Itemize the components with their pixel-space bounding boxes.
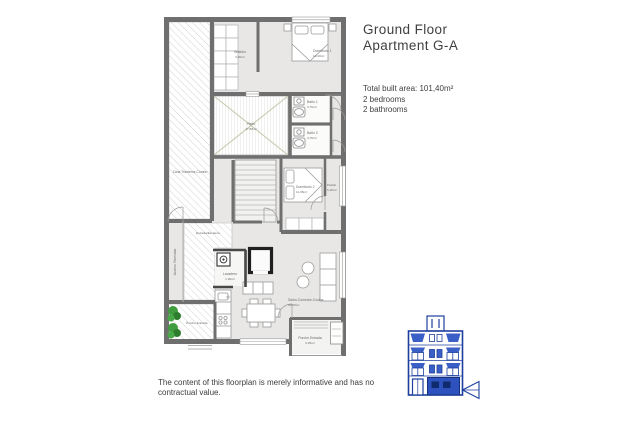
label-vestidor: Vestidor — [234, 50, 247, 54]
label-patio: Patio — [247, 122, 255, 126]
area-porche-right: 3,25m² — [305, 341, 315, 345]
window-icon — [240, 339, 286, 345]
plan-title-line2: Apartment G-A — [363, 38, 458, 54]
label-entrada: Entrada/Escalera — [196, 231, 220, 235]
kitchen-peninsula-icon — [243, 282, 273, 294]
area-lavadero: 1,90m² — [225, 277, 235, 281]
label-acceso: Acceso Viviendas — [173, 248, 177, 275]
utility-closet — [331, 322, 344, 344]
label-porche-left: Porche Entrada — [186, 321, 208, 325]
area-vestidor: 3,90m² — [235, 55, 245, 59]
label-salon: Salón-Comedor-Cocina — [288, 298, 324, 302]
disclaimer-text: The content of this floorplan is merely … — [158, 378, 410, 398]
label-dormitorio2: Dormitorio 2 — [296, 185, 315, 189]
plan-title-line1: Ground Floor — [363, 22, 458, 38]
bed1-icon — [284, 23, 336, 61]
elevator — [250, 249, 272, 273]
floorplan-drawing: Zona Trasteros Común Acceso Viviendas En… — [0, 0, 630, 423]
area-bano2: 3,70m² — [307, 136, 317, 140]
kitchen-counter-icon — [215, 290, 231, 338]
area-salon: 32,50m² — [288, 303, 299, 307]
window-icon — [340, 252, 346, 298]
area-dormitorio2: 11,05m² — [296, 190, 307, 194]
toilet2-icon — [293, 128, 305, 148]
label-dormitorio1: Dormitorio 1 — [313, 49, 332, 53]
label-bano2: Baño 2 — [307, 131, 318, 135]
label-lavadero: Lavadero — [223, 272, 237, 276]
penthouse — [427, 316, 444, 331]
area-bano1: 3,70m² — [307, 105, 317, 109]
stairs-icon — [235, 160, 276, 222]
highlighted-ground-floor — [428, 378, 460, 396]
wardrobe2-icon — [286, 218, 324, 230]
plan-title: Ground Floor Apartment G-A — [363, 22, 458, 54]
label-pasillo: Pasillo — [327, 183, 336, 187]
area-pasillo: 5,20m² — [327, 188, 337, 192]
label-trasteros: Zona Trasteros Común — [173, 170, 208, 174]
plan-summary: Total built area: 101,40m² 2 bedrooms 2 … — [363, 84, 453, 116]
area-patio: 17,80m² — [245, 127, 256, 131]
toilet-icon — [293, 97, 305, 117]
washing-machine-icon — [217, 253, 230, 266]
window-icon — [340, 166, 346, 206]
label-bano1: Baño 1 — [307, 100, 318, 104]
bathrooms-text: 2 bathrooms — [363, 105, 453, 116]
window-icon — [246, 92, 259, 97]
area-dormitorio1: 12,40m² — [313, 54, 324, 58]
label-porche-right: Porche Entrada — [298, 336, 322, 340]
floorplan-page: { "header": { "line1": "Ground Floor", "… — [0, 0, 630, 423]
zona-trasteros-area — [169, 22, 210, 219]
pennant-icon — [463, 382, 480, 399]
bedrooms-text: 2 bedrooms — [363, 95, 453, 106]
building-elevation — [409, 316, 480, 399]
built-area-text: Total built area: 101,40m² — [363, 84, 453, 95]
window-icon — [292, 17, 330, 23]
